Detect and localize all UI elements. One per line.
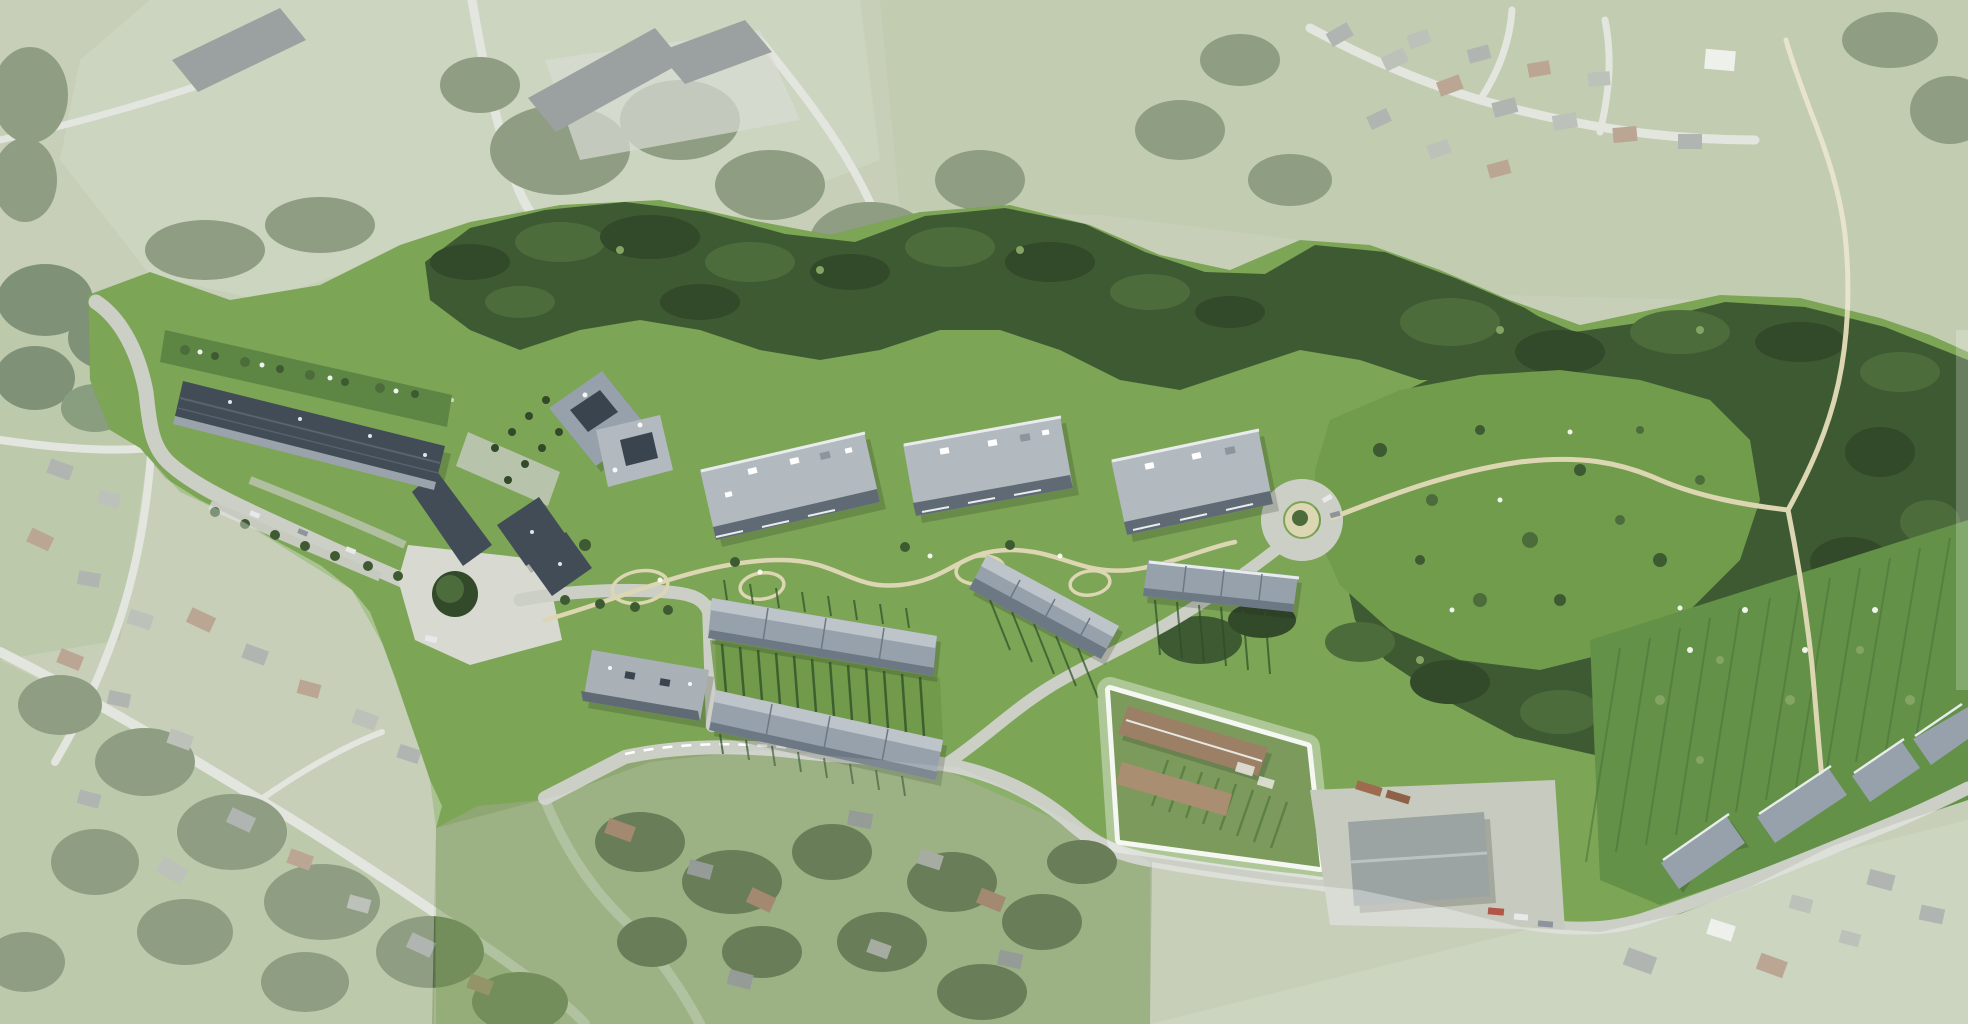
image-edge-artifact bbox=[1956, 330, 1968, 690]
site-plan-canvas bbox=[0, 0, 1968, 1024]
truck bbox=[1488, 907, 1505, 915]
aerial-site-plan bbox=[0, 0, 1968, 1024]
truck bbox=[1514, 913, 1528, 920]
